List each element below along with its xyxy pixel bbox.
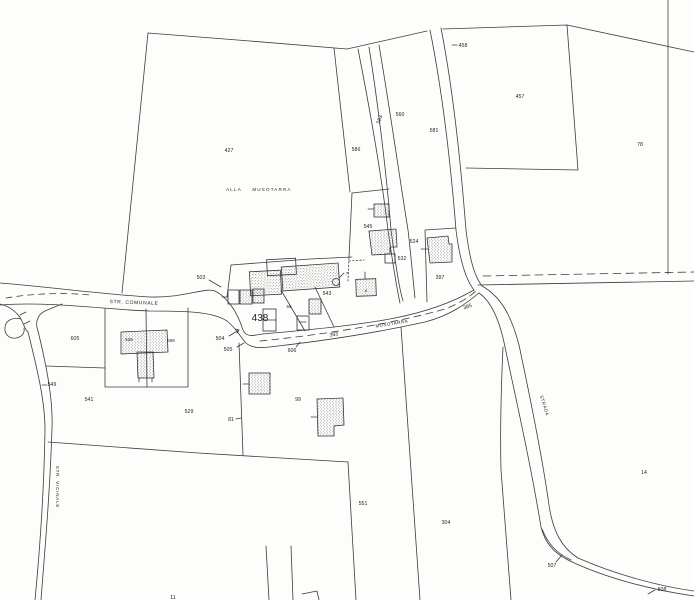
parcel-label-551: 551 [359, 501, 368, 507]
building [427, 236, 452, 263]
parcel-label-529: 529 [185, 409, 194, 415]
parcel-label-583: 583 [376, 114, 385, 124]
road-label-alla: ALLA [226, 187, 242, 192]
building [121, 330, 168, 354]
road-label-musotarra-place: MUSOTARRA [252, 187, 291, 192]
parcel-label-581: 581 [430, 128, 439, 134]
parcel-label-385: 385 [463, 303, 473, 311]
building [137, 352, 154, 378]
parcel-label-81: 81 [228, 417, 234, 423]
parcel-label-14: 14 [641, 470, 647, 476]
parcel-label-304: 304 [442, 520, 451, 526]
road-label-str-comunale: STR. COMUNALE [109, 299, 158, 307]
parcel-label-393: 393 [329, 331, 339, 338]
parcel-label-508: 508 [658, 587, 667, 593]
parcel-label-605: 605 [71, 336, 80, 342]
parcel-label-78: 78 [637, 142, 643, 148]
parcel-label-524: 524 [410, 239, 419, 245]
cadastral-map: 4274584577858658356058154552453239750343… [0, 0, 694, 600]
parcel-label-99: 99 [295, 397, 301, 403]
parcel-label-69: 69 [286, 304, 292, 309]
parcel-label-457: 457 [516, 94, 525, 100]
building-outline [228, 290, 239, 304]
parcel-label-458: 458 [459, 43, 468, 49]
road-label-musotarra-road: MUSOTARRA [375, 318, 408, 328]
building-outline [385, 254, 395, 263]
parcel-label-503: 503 [197, 275, 206, 281]
parcel-label-397: 397 [436, 275, 445, 281]
parcel-label-504: 504 [216, 336, 225, 342]
parcel-label-549: 549 [48, 382, 57, 388]
building [309, 299, 321, 314]
parcel-label-505: 505 [224, 347, 233, 353]
parcel-label-560: 560 [396, 112, 405, 118]
building [374, 204, 389, 217]
building [240, 290, 252, 304]
parcel-labels-layer: 4274584577858658356058154552453239750343… [48, 43, 667, 600]
parcel-label-606: 606 [288, 348, 297, 354]
parcel-label-532: 532 [398, 256, 407, 262]
road-network [0, 283, 694, 600]
parcel-label-507: 507 [548, 563, 557, 569]
parcel-label-586: 586 [352, 147, 361, 153]
parcel-label-11: 11 [170, 595, 175, 600]
leader-lines [42, 45, 655, 594]
parcel-label-438: 438 [252, 313, 269, 324]
parcel-label-528: 528 [125, 337, 133, 342]
building [249, 373, 270, 394]
parcel-label-541: 541 [85, 397, 94, 403]
parcel-label-608: 608 [167, 338, 175, 343]
parcel-label-543: 543 [323, 291, 332, 297]
building [281, 263, 340, 291]
building [369, 229, 397, 255]
parcel-label-427: 427 [225, 148, 234, 154]
road-label-strada: STRADA [539, 395, 550, 417]
road-label-str-vicinale: STR. VICINALE [55, 466, 60, 508]
parcel-label-545: 545 [364, 224, 373, 230]
cadastral-map-sheet: 4274584577858658356058154552453239750343… [0, 0, 694, 600]
building [253, 289, 264, 303]
building [317, 398, 344, 436]
